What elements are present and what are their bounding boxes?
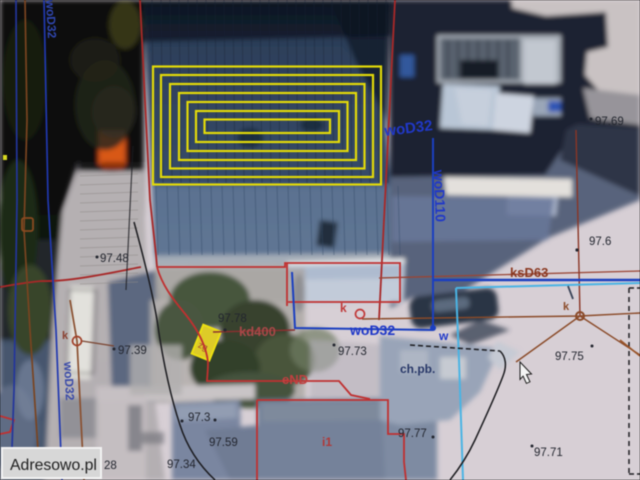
svg-text:ch.pb.: ch.pb. [400, 362, 435, 376]
svg-text:97.39: 97.39 [118, 345, 147, 357]
svg-text:woD32: woD32 [349, 322, 395, 338]
svg-text:97.6: 97.6 [589, 236, 611, 248]
svg-text:k: k [62, 330, 69, 342]
svg-text:97.69: 97.69 [595, 116, 624, 128]
svg-text:i1: i1 [322, 435, 332, 449]
svg-text:k: k [563, 301, 570, 313]
svg-text:97.34: 97.34 [167, 459, 196, 471]
svg-text:k: k [340, 301, 347, 315]
svg-text:97.59: 97.59 [209, 437, 238, 449]
svg-text:Adresowo.pl: Adresowo.pl [10, 457, 97, 474]
svg-text:kd400: kd400 [239, 324, 276, 339]
svg-text:97.73: 97.73 [338, 346, 367, 358]
svg-text:woD32: woD32 [61, 360, 77, 401]
svg-text:97.48: 97.48 [100, 253, 129, 265]
svg-text:97.71: 97.71 [534, 447, 563, 459]
svg-text:woD110: woD110 [431, 169, 449, 223]
svg-text:woD32: woD32 [43, 0, 59, 39]
svg-text:97.77: 97.77 [398, 428, 427, 440]
svg-text:eND: eND [282, 372, 308, 387]
svg-text:w: w [438, 329, 449, 343]
svg-text:28: 28 [104, 460, 117, 472]
svg-text:97.3: 97.3 [188, 412, 210, 424]
svg-text:97.75: 97.75 [555, 351, 584, 363]
svg-text:ksD63: ksD63 [510, 265, 548, 280]
